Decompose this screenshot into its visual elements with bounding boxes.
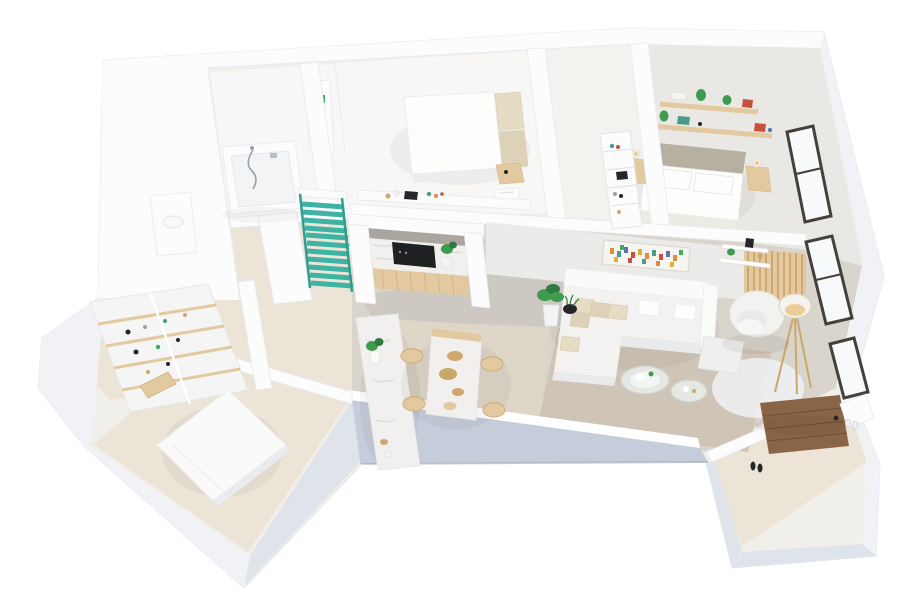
shelf-red-item <box>754 123 766 132</box>
dab <box>645 253 649 259</box>
cooktop-knob <box>405 252 407 254</box>
plant-pot-dark <box>563 304 577 314</box>
dab <box>617 251 621 257</box>
armchair-cushion <box>737 319 763 335</box>
dab <box>638 249 642 255</box>
item <box>156 345 160 349</box>
pillow <box>570 312 590 328</box>
dab <box>610 248 614 254</box>
hall-shelf-book <box>616 171 628 180</box>
desk-book <box>404 191 418 200</box>
plant-leaves <box>449 242 457 249</box>
shower-head <box>250 146 254 150</box>
coffee-table-small <box>671 380 707 402</box>
desk-item-orange <box>434 194 438 198</box>
bathtub-basin <box>231 151 296 207</box>
bowl <box>439 368 457 380</box>
hall-shelf-item <box>616 145 620 149</box>
item <box>146 370 150 374</box>
shelf-plant <box>727 249 735 256</box>
cooktop-unit <box>392 242 436 268</box>
plant-leaves <box>375 338 384 346</box>
shadow <box>755 415 845 435</box>
cooktop-knob <box>399 251 401 253</box>
bed2-nightstand-right <box>746 166 771 192</box>
island-vase <box>385 451 392 457</box>
desk-item-teal <box>427 192 431 196</box>
floorplan-svg: 3D isometric apartment floor plan - whit… <box>0 0 900 600</box>
table-decor <box>635 374 645 380</box>
item <box>163 319 167 323</box>
shelf-laptop <box>672 92 686 100</box>
dab <box>679 250 683 255</box>
bowl <box>452 388 464 396</box>
shadow <box>722 334 790 354</box>
nightstand-item <box>504 170 508 174</box>
dab <box>628 258 632 263</box>
table-decor <box>683 386 689 392</box>
shelf-dark-books <box>745 238 754 248</box>
shelf-red-book <box>742 99 753 108</box>
table-decor <box>692 389 696 393</box>
shoe <box>846 419 851 427</box>
hall-shelf-shoe <box>617 210 621 214</box>
table-sprig <box>649 372 654 377</box>
dab <box>670 262 674 267</box>
bath-control <box>270 153 277 158</box>
hall-shelf-shoe <box>619 194 623 198</box>
dab <box>673 255 677 261</box>
lamp-glow <box>755 161 759 165</box>
desk-mug <box>385 193 390 198</box>
dab <box>614 257 618 262</box>
plant <box>696 89 706 101</box>
item <box>176 338 180 342</box>
master-bed-pillow-2 <box>499 130 528 168</box>
pillow <box>608 304 628 320</box>
bed2-pillow-2 <box>693 173 734 195</box>
pillow <box>590 302 610 318</box>
shadow <box>222 207 302 223</box>
vanity-basin <box>163 216 183 228</box>
bowl <box>444 402 457 410</box>
dab <box>631 252 635 258</box>
plant-pot-white <box>543 305 559 326</box>
pillow <box>638 300 660 316</box>
plant-leaves <box>550 292 564 302</box>
master-nightstand <box>496 163 524 184</box>
dab <box>659 254 663 260</box>
pillow <box>560 336 580 352</box>
dab <box>624 247 628 253</box>
plant-pot <box>370 352 380 363</box>
dab <box>620 245 624 250</box>
lamp-glow <box>785 304 805 316</box>
shoe <box>758 464 763 473</box>
item <box>143 325 147 329</box>
shelf-blue-item <box>768 128 772 132</box>
dab <box>666 251 670 257</box>
shelf-brass-vase <box>758 253 763 259</box>
desk-item-red <box>440 192 444 196</box>
item <box>126 330 131 335</box>
shoe <box>751 462 756 471</box>
item <box>183 313 187 317</box>
coffee-table-inner <box>629 371 661 389</box>
desk-bust <box>395 191 400 196</box>
dab <box>652 250 656 256</box>
shelf-teal-books <box>677 116 690 125</box>
plant <box>723 95 732 105</box>
dab <box>656 261 660 266</box>
floorplan-render: 3D isometric apartment floor plan - whit… <box>0 0 900 600</box>
dab <box>642 259 646 264</box>
shelf-dark-item <box>698 122 702 126</box>
master-bed-pillow-1 <box>495 92 524 130</box>
lamp-glow <box>634 152 638 156</box>
hall-shelf-shoe <box>613 192 617 196</box>
bowl <box>447 351 463 361</box>
hall-shelf-item <box>610 144 614 148</box>
island-bowl <box>380 439 388 445</box>
shoe <box>853 421 858 429</box>
master-bed-mattress <box>404 92 502 174</box>
item <box>134 350 139 355</box>
plant <box>660 111 669 122</box>
plant-pot <box>441 257 452 268</box>
pillow <box>674 304 696 320</box>
item <box>166 362 170 366</box>
